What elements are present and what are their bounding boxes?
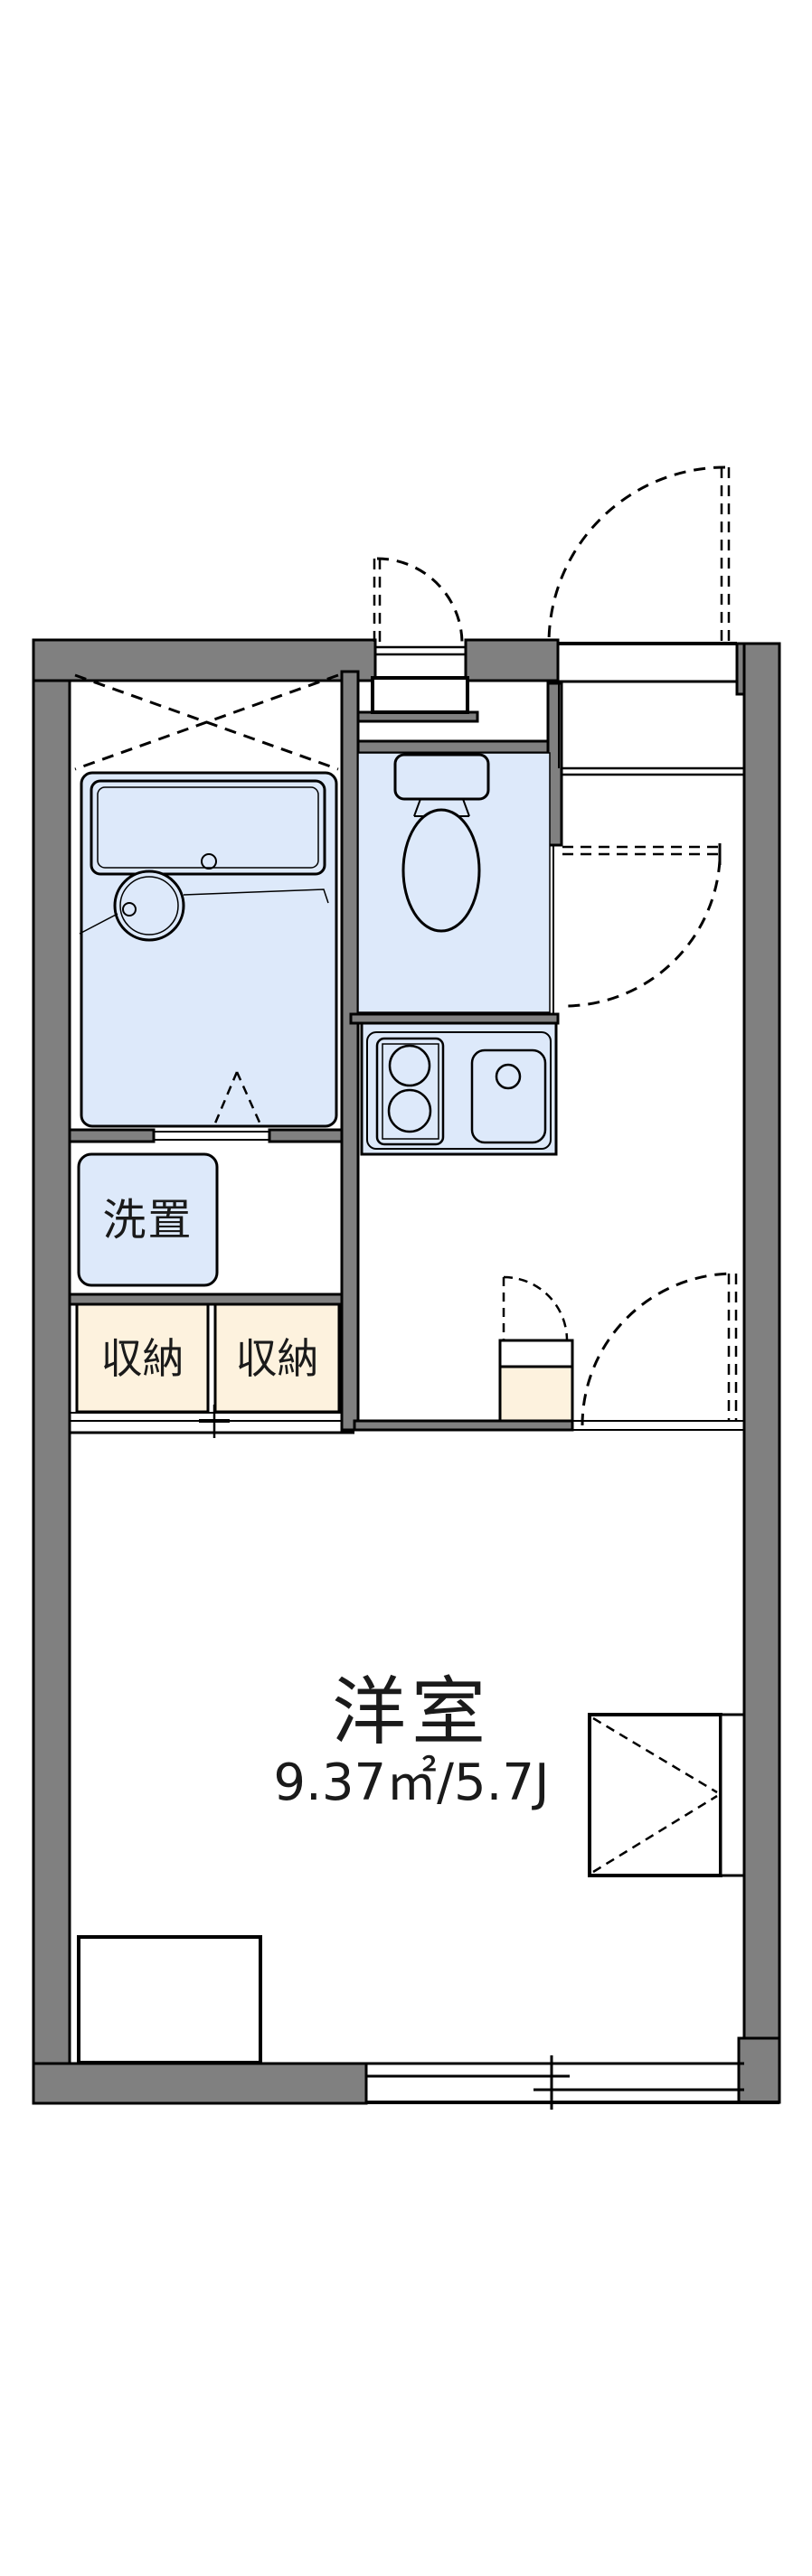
- outer-wall-left: [33, 640, 70, 2103]
- outer-wall-top-mid: [466, 640, 558, 681]
- outer-wall-bottom: [33, 2064, 366, 2103]
- hall-door-swing-arc: [563, 860, 720, 1006]
- closet-wall-top: [70, 1294, 342, 1304]
- room-door-swing-arc: [582, 1274, 734, 1425]
- main-room-area-label: 9.37㎡/5.7J: [231, 1752, 592, 1815]
- toilet-tank: [395, 755, 488, 799]
- toilet-wall-top: [358, 741, 552, 753]
- bay-window: [590, 1715, 721, 1876]
- partition-wall-vertical: [342, 672, 358, 1430]
- bathroom-wall-bottom-right: [269, 1130, 342, 1142]
- entrance: [500, 1277, 572, 1421]
- main-room-label: 洋室: [271, 1668, 552, 1758]
- bathroom: [75, 675, 338, 1126]
- shoe-cabinet-door-swing-arc: [504, 1277, 567, 1340]
- niche-door-swing-arc: [377, 559, 462, 644]
- storage-left-label: 収納: [77, 1304, 208, 1412]
- outer-wall-bottom-right-corner: [739, 2038, 779, 2102]
- bathroom-wall-bottom-left: [70, 1130, 154, 1142]
- outer-wall-top-left: [33, 640, 375, 681]
- bed: [79, 1937, 260, 2063]
- kitchen-unit: [362, 1023, 556, 1154]
- entrance-door-swing-arc: [549, 467, 725, 644]
- shoe-cabinet-counter: [500, 1340, 572, 1367]
- entry-niche-recess: [373, 678, 467, 712]
- toilet-bowl: [403, 810, 479, 931]
- storage-right-label: 収納: [215, 1304, 339, 1412]
- laundry-space-label: 洗置: [79, 1154, 217, 1285]
- outer-wall-right: [744, 644, 779, 2102]
- sliding-window: [366, 2055, 779, 2110]
- bath-unit: [81, 773, 336, 1126]
- kitchen: [362, 1023, 556, 1154]
- toilet-room: [358, 753, 550, 1012]
- floor-plan-page: 洋室 9.37㎡/5.7J 洗置 収納 収納: [0, 0, 812, 2576]
- floor-plan: [0, 0, 812, 2576]
- bay-window-sill: [721, 1715, 744, 1876]
